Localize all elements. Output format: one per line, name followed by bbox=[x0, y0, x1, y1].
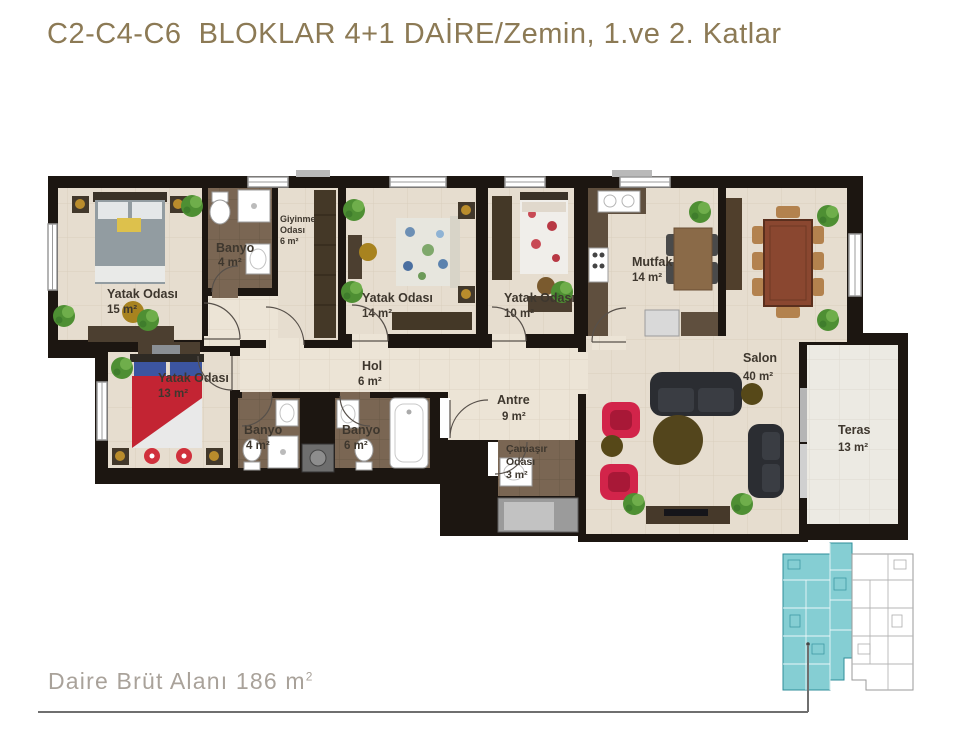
gross-area-superscript: 2 bbox=[306, 669, 314, 683]
plant-icon bbox=[53, 305, 75, 327]
room-label: Yatak Odası bbox=[504, 291, 575, 305]
stair-shaft bbox=[498, 498, 578, 532]
floorplan-page: C2-C4-C6 BLOKLAR 4+1 DAİRE/Zemin, 1.ve 2… bbox=[0, 0, 972, 732]
divider-line bbox=[38, 711, 808, 713]
stove-icon bbox=[589, 248, 608, 282]
stool-icon bbox=[359, 243, 377, 261]
room-label: Antre bbox=[497, 393, 530, 407]
room-area: 15 m² bbox=[107, 304, 137, 316]
kitchen-sink-icon bbox=[598, 191, 640, 212]
tv-unit-icon bbox=[646, 506, 730, 524]
key-plan-highlighted-unit bbox=[783, 543, 852, 690]
window-icon bbox=[849, 234, 861, 296]
bathtub-icon bbox=[390, 398, 428, 468]
loveseat-icon bbox=[748, 424, 784, 498]
room-label: Salon bbox=[743, 351, 777, 365]
room-label: Teras bbox=[838, 423, 870, 437]
bed-icon bbox=[396, 216, 460, 288]
gross-area-text: Daire Brüt Alanı 186 m bbox=[48, 668, 306, 694]
key-plan-leader-line bbox=[807, 645, 809, 712]
plant-icon bbox=[689, 201, 711, 223]
kitchen-table-icon bbox=[666, 228, 718, 290]
room-area: 6 m² bbox=[344, 440, 368, 452]
plant-icon bbox=[817, 309, 839, 331]
room-area: 40 m² bbox=[743, 371, 773, 383]
plant-icon bbox=[341, 281, 363, 303]
side-table-icon bbox=[741, 383, 763, 405]
room-area: 13 m² bbox=[158, 388, 188, 400]
plant-icon bbox=[817, 205, 839, 227]
plant-icon bbox=[137, 309, 159, 331]
plant-icon bbox=[111, 357, 133, 379]
window-icon bbox=[97, 382, 107, 440]
wardrobe-icon bbox=[314, 190, 336, 338]
plant-icon bbox=[181, 195, 203, 217]
counter-icon bbox=[681, 312, 718, 336]
wardrobe-icon bbox=[492, 196, 512, 280]
plant-icon bbox=[731, 493, 753, 515]
window-icon bbox=[248, 177, 288, 187]
floor-plan: Yatak Odası 15 m² Banyo 4 m² Giyinme Oda… bbox=[40, 170, 910, 545]
washer-icon bbox=[302, 444, 334, 472]
page-title: C2-C4-C6 BLOKLAR 4+1 DAİRE/Zemin, 1.ve 2… bbox=[47, 18, 781, 51]
dresser-icon bbox=[88, 326, 174, 342]
armchair-icon bbox=[602, 402, 640, 438]
toilet-icon bbox=[210, 192, 230, 224]
room-label: Hol bbox=[362, 359, 382, 373]
room-yatak-odasi-10: Yatak Odası 10 m² bbox=[492, 192, 575, 320]
bed-icon bbox=[93, 192, 167, 284]
room-area: 4 m² bbox=[246, 440, 270, 452]
room-area: 13 m² bbox=[838, 442, 868, 454]
side-table-icon bbox=[601, 435, 623, 457]
window-icon bbox=[48, 224, 57, 290]
wardrobe-icon bbox=[392, 312, 472, 330]
room-label: Odası bbox=[280, 225, 305, 235]
room-label: Yatak Odası bbox=[362, 291, 433, 305]
plant-icon bbox=[623, 493, 645, 515]
key-plan bbox=[780, 540, 920, 705]
sofa-icon bbox=[650, 372, 742, 416]
room-area: 10 m² bbox=[504, 308, 534, 320]
desk-icon bbox=[348, 235, 362, 279]
key-plan-other-unit bbox=[852, 554, 913, 690]
window-icon bbox=[505, 177, 545, 187]
gross-area-label: Daire Brüt Alanı 186 m2 bbox=[48, 668, 314, 695]
room-area: 6 m² bbox=[358, 376, 382, 388]
bed-icon bbox=[520, 192, 568, 274]
room-area: 6 m² bbox=[280, 236, 299, 246]
room-area: 14 m² bbox=[632, 272, 662, 284]
room-label: Yatak Odası bbox=[158, 371, 229, 385]
room-label: Banyo bbox=[216, 241, 255, 255]
room-area: 14 m² bbox=[362, 308, 392, 320]
room-label: Mutfak bbox=[632, 255, 672, 269]
room-label: Giyinme bbox=[280, 214, 316, 224]
fridge-icon bbox=[645, 310, 679, 336]
plant-icon bbox=[343, 199, 365, 221]
window-icon bbox=[390, 177, 446, 187]
room-label: Yatak Odası bbox=[107, 287, 178, 301]
coffee-table-icon bbox=[653, 415, 703, 465]
window-icon bbox=[620, 177, 670, 187]
room-area: 9 m² bbox=[502, 411, 526, 423]
sideboard-icon bbox=[726, 198, 742, 290]
